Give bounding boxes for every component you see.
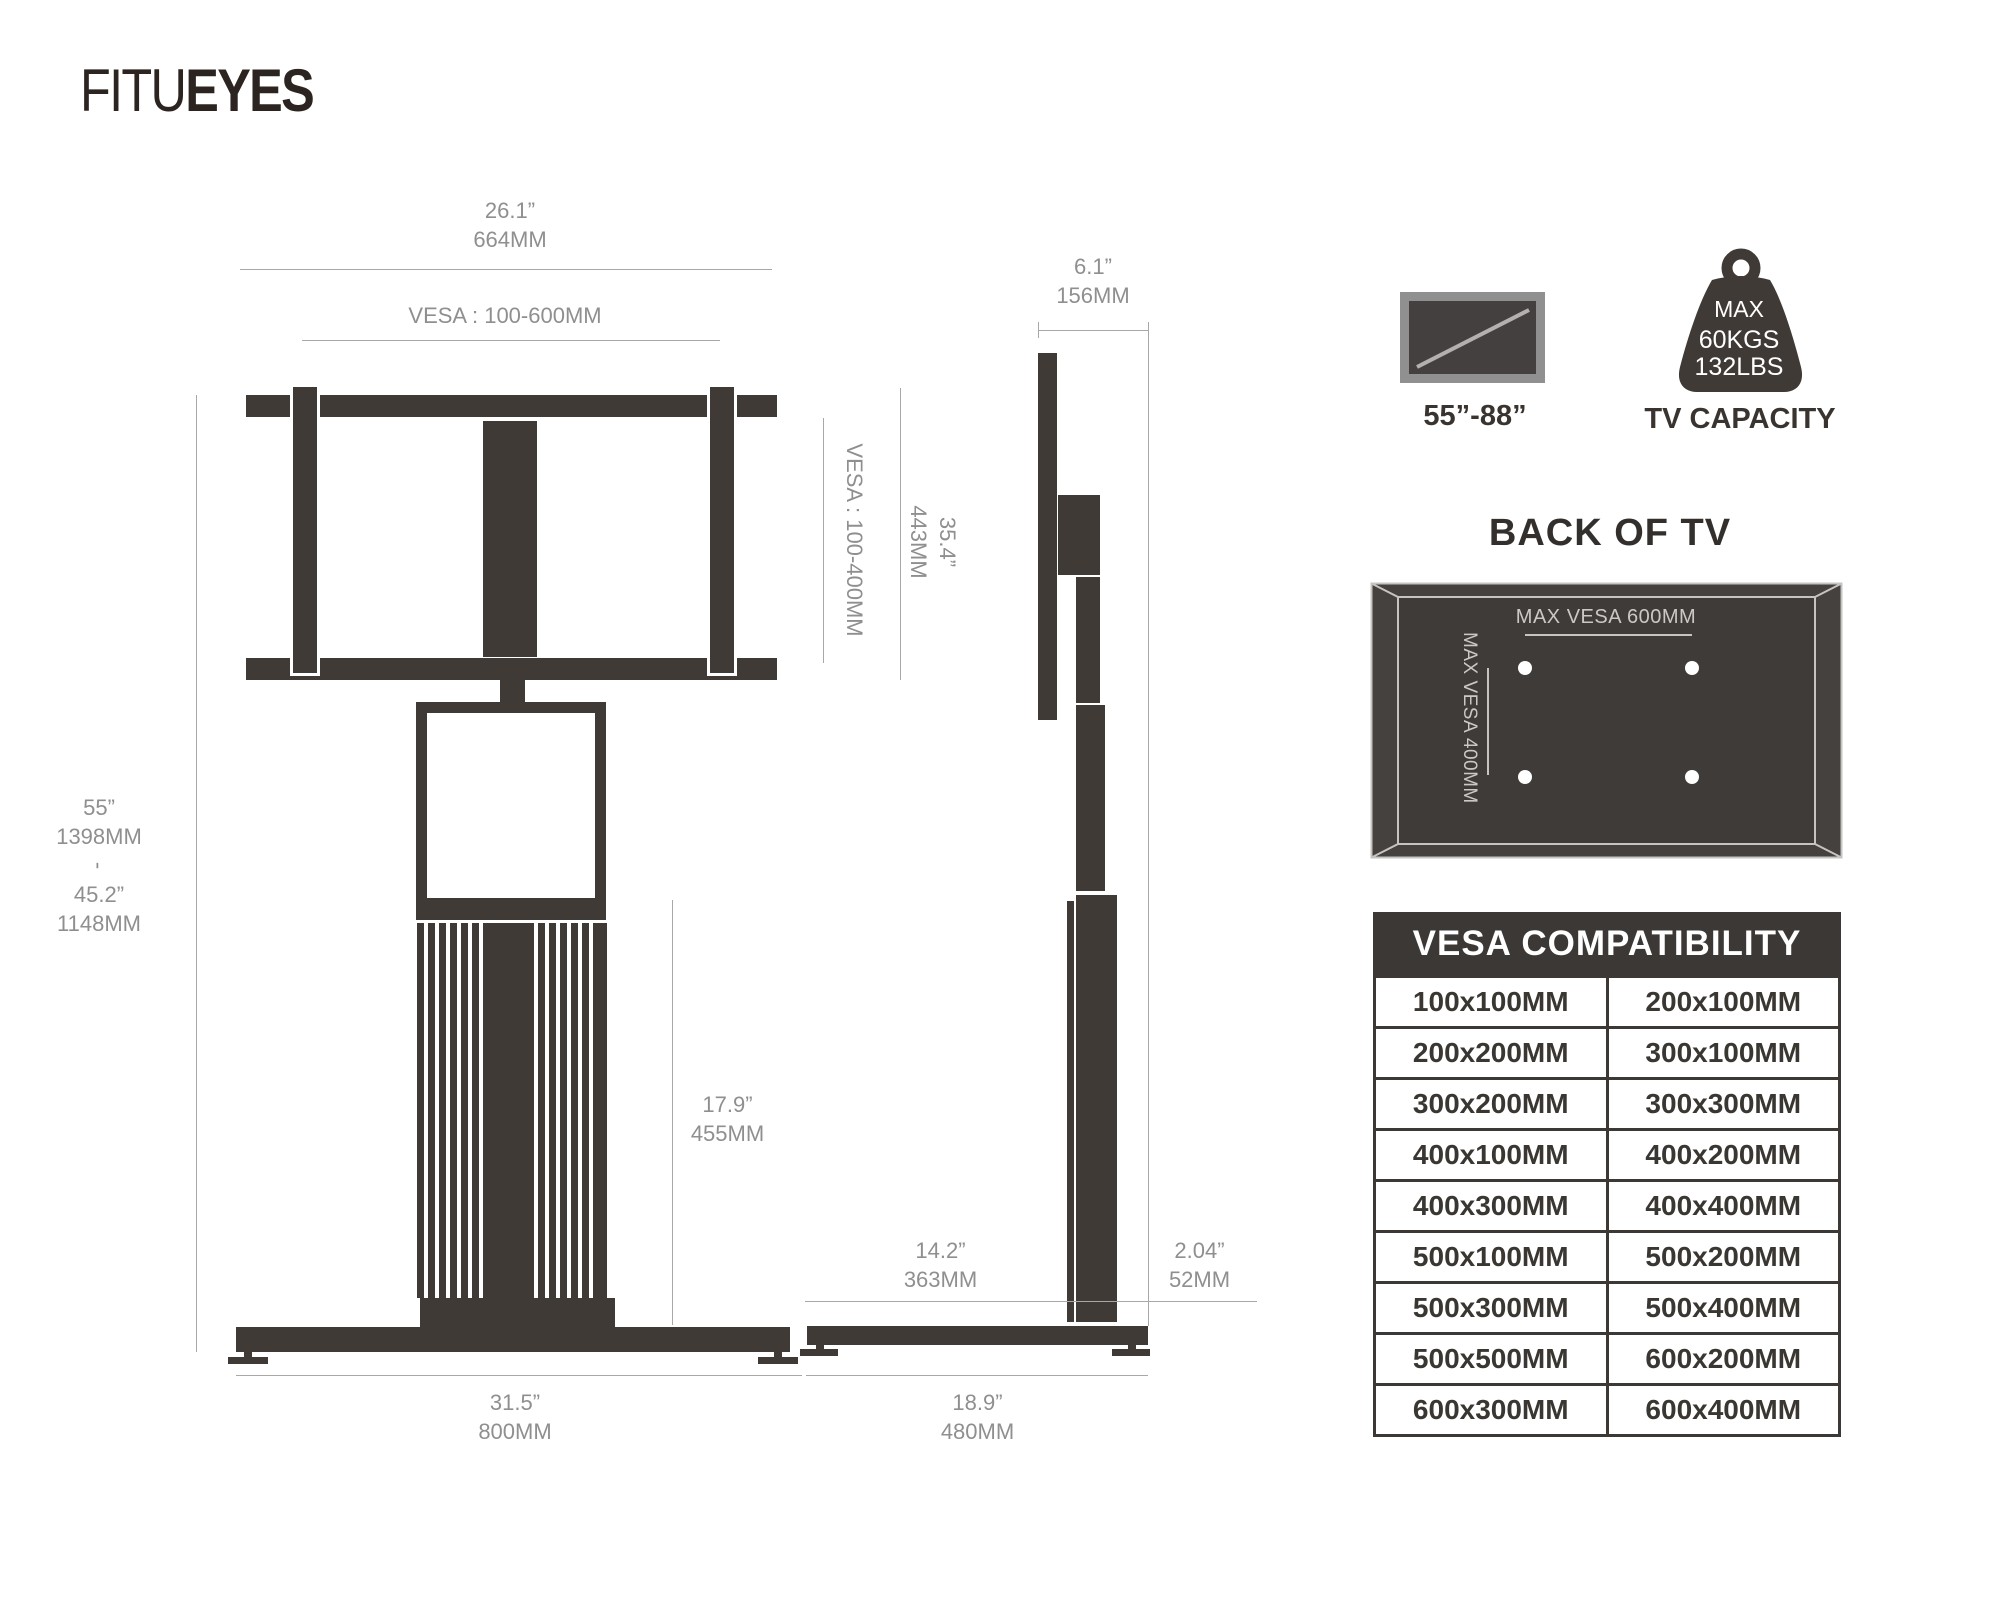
table-row: 500x300MM 500x400MM xyxy=(1375,1283,1840,1334)
vesa-table-title: VESA COMPATIBILITY xyxy=(1373,912,1841,975)
vesa-compatibility-card: VESA COMPATIBILITY 100x100MM 200x100MM 2… xyxy=(1373,912,1841,1437)
vesa-size-cell: 600x300MM xyxy=(1375,1385,1608,1436)
table-row: 600x300MM 600x400MM xyxy=(1375,1385,1840,1436)
vesa-size-cell: 500x500MM xyxy=(1375,1334,1608,1385)
vesa-size-cell: 300x200MM xyxy=(1375,1079,1608,1130)
vesa-size-cell: 100x100MM xyxy=(1375,977,1608,1028)
vesa-size-cell: 500x200MM xyxy=(1607,1232,1840,1283)
vesa-size-cell: 400x400MM xyxy=(1607,1181,1840,1232)
vesa-table: 100x100MM 200x100MM 200x200MM 300x100MM … xyxy=(1373,975,1841,1437)
max-vesa-600-label: MAX VESA 600MM xyxy=(1456,606,1756,629)
vesa-size-cell: 500x300MM xyxy=(1375,1283,1608,1334)
vesa-size-cell: 400x100MM xyxy=(1375,1130,1608,1181)
table-row: 500x500MM 600x200MM xyxy=(1375,1334,1840,1385)
table-row: 500x100MM 500x200MM xyxy=(1375,1232,1840,1283)
vesa-size-cell: 200x200MM xyxy=(1375,1028,1608,1079)
vesa-size-cell: 400x300MM xyxy=(1375,1181,1608,1232)
vesa-size-cell: 300x100MM xyxy=(1607,1028,1840,1079)
vesa-size-cell: 600x400MM xyxy=(1607,1385,1840,1436)
table-row: 400x100MM 400x200MM xyxy=(1375,1130,1840,1181)
table-row: 300x200MM 300x300MM xyxy=(1375,1079,1840,1130)
vesa-size-cell: 400x200MM xyxy=(1607,1130,1840,1181)
table-row: 100x100MM 200x100MM xyxy=(1375,977,1840,1028)
vesa-size-cell: 300x300MM xyxy=(1607,1079,1840,1130)
table-row: 200x200MM 300x100MM xyxy=(1375,1028,1840,1079)
vesa-size-cell: 200x100MM xyxy=(1607,977,1840,1028)
back-of-tv-title: BACK OF TV xyxy=(1440,512,1780,555)
vesa-size-cell: 500x100MM xyxy=(1375,1232,1608,1283)
max-vesa-400-label: MAX VESA 400MM xyxy=(1458,632,1480,797)
vesa-size-cell: 600x200MM xyxy=(1607,1334,1840,1385)
vesa-size-cell: 500x400MM xyxy=(1607,1283,1840,1334)
spec-sheet-canvas: FITUEYES 26.1” 664MM VESA : 100-600MM 55… xyxy=(0,0,2000,1600)
table-row: 400x300MM 400x400MM xyxy=(1375,1181,1840,1232)
